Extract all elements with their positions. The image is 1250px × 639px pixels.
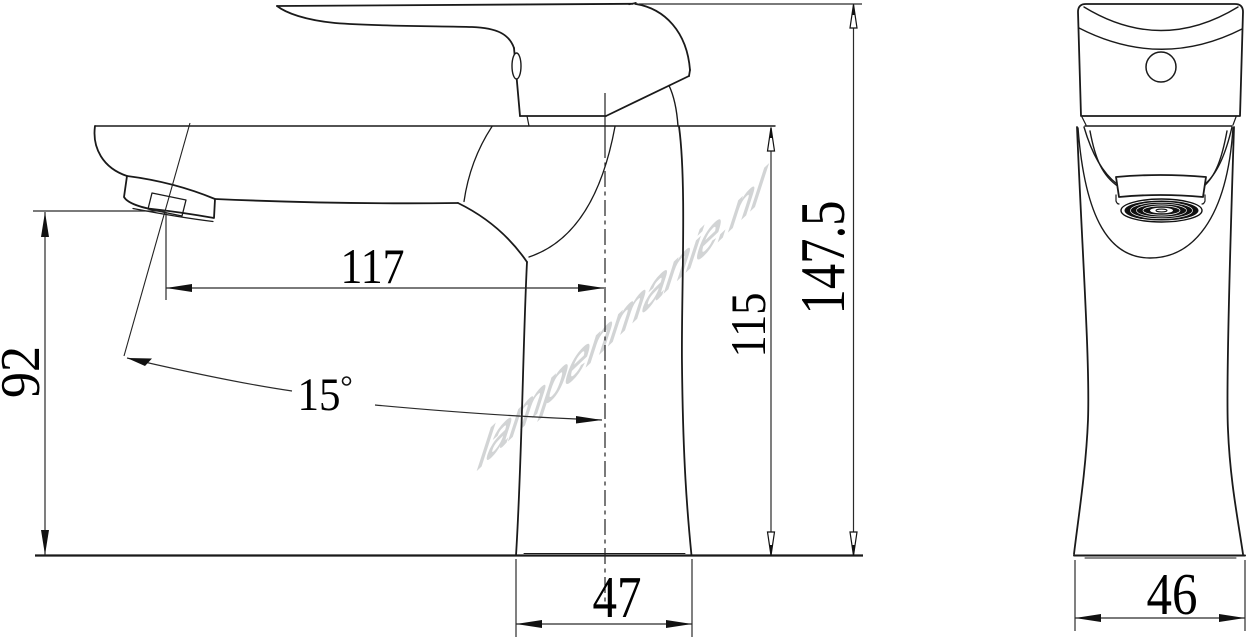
svg-text:115: 115: [720, 293, 776, 358]
svg-text:147.5: 147.5: [787, 201, 858, 315]
svg-text:47: 47: [593, 564, 642, 630]
svg-text:46: 46: [1147, 561, 1198, 627]
svg-text:15: 15: [298, 369, 341, 421]
svg-text:117: 117: [341, 238, 405, 294]
svg-text:92: 92: [0, 346, 52, 398]
